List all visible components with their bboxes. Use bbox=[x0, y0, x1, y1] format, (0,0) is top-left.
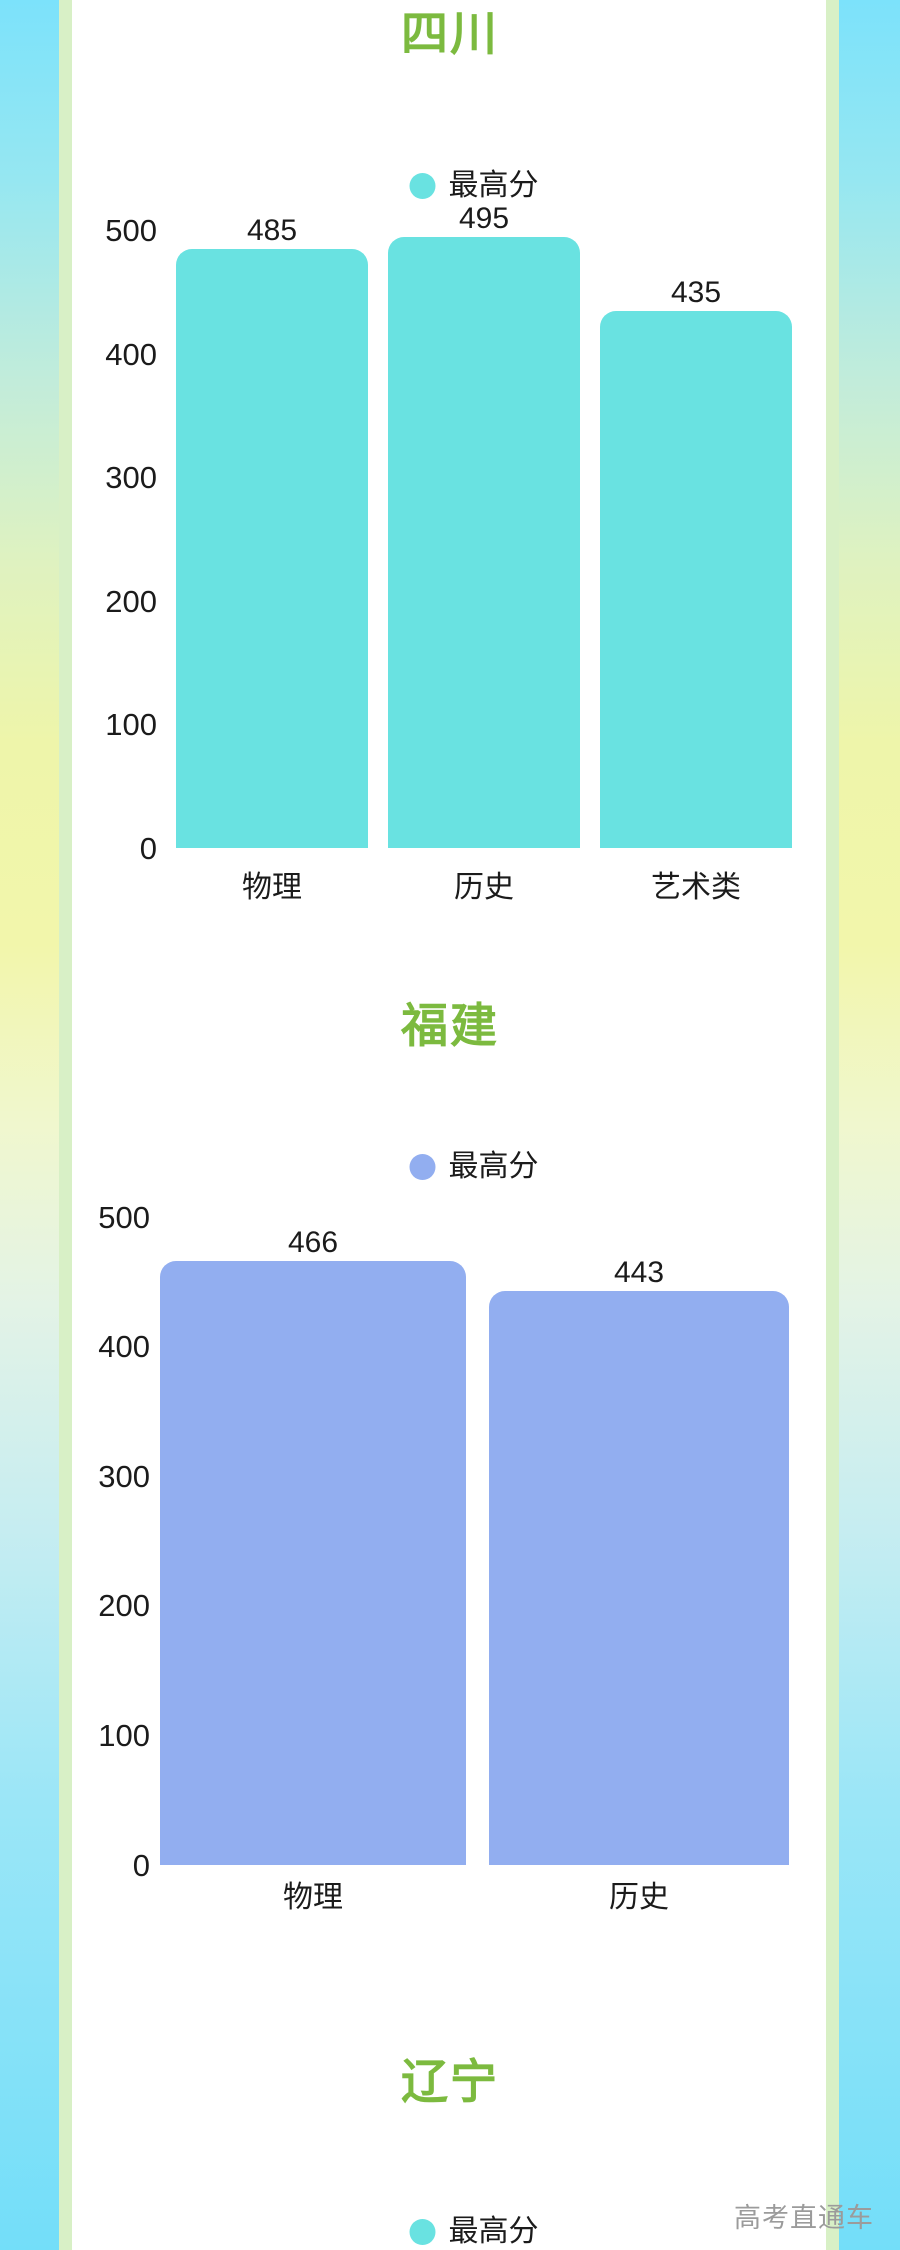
category-label: 历史 bbox=[388, 873, 580, 903]
bar bbox=[160, 1261, 466, 1865]
category-label: 物理 bbox=[160, 1883, 466, 1913]
category-label: 物理 bbox=[176, 873, 368, 903]
bar-value-label: 495 bbox=[388, 204, 580, 234]
bar-value-label: 435 bbox=[600, 278, 792, 308]
y-tick-label: 500 bbox=[0, 215, 157, 246]
left-border-strip bbox=[59, 0, 72, 2250]
bar-value-label: 443 bbox=[489, 1258, 789, 1288]
legend-dot-icon bbox=[410, 1154, 436, 1180]
y-tick-label: 200 bbox=[0, 586, 157, 617]
y-tick-label: 400 bbox=[0, 339, 157, 370]
legend-sichuan: 最高分 bbox=[410, 169, 539, 203]
y-tick-label: 100 bbox=[0, 1720, 150, 1751]
y-tick-label: 0 bbox=[0, 833, 157, 864]
legend-label: 最高分 bbox=[449, 2215, 539, 2249]
legend-dot-icon bbox=[410, 2219, 436, 2245]
bar-value-label: 485 bbox=[176, 216, 368, 246]
bar bbox=[388, 237, 580, 848]
y-tick-label: 100 bbox=[0, 709, 157, 740]
y-tick-label: 0 bbox=[0, 1850, 150, 1881]
chart-title-sichuan: 四川 bbox=[0, 8, 900, 60]
y-tick-label: 300 bbox=[0, 462, 157, 493]
chart-title-liaoning: 辽宁 bbox=[0, 2056, 900, 2108]
legend-label: 最高分 bbox=[449, 169, 539, 203]
right-border-strip bbox=[826, 0, 839, 2250]
y-tick-label: 500 bbox=[0, 1202, 150, 1233]
bar bbox=[489, 1291, 789, 1865]
legend-fujian: 最高分 bbox=[410, 1150, 539, 1184]
legend-dot-icon bbox=[410, 173, 436, 199]
y-tick-label: 300 bbox=[0, 1461, 150, 1492]
category-label: 艺术类 bbox=[600, 873, 792, 903]
y-tick-label: 400 bbox=[0, 1331, 150, 1362]
watermark: 高考直通车 bbox=[734, 2204, 874, 2232]
bar bbox=[176, 249, 368, 848]
legend-liaoning: 最高分 bbox=[410, 2215, 539, 2249]
bar bbox=[600, 311, 792, 848]
legend-label: 最高分 bbox=[449, 1150, 539, 1184]
chart-title-fujian: 福建 bbox=[0, 1000, 900, 1052]
category-label: 历史 bbox=[489, 1883, 789, 1913]
infographic-root: 四川 最高分 0100200300400500485物理495历史435艺术类 … bbox=[0, 0, 900, 2250]
y-tick-label: 200 bbox=[0, 1590, 150, 1621]
bar-value-label: 466 bbox=[160, 1228, 466, 1258]
